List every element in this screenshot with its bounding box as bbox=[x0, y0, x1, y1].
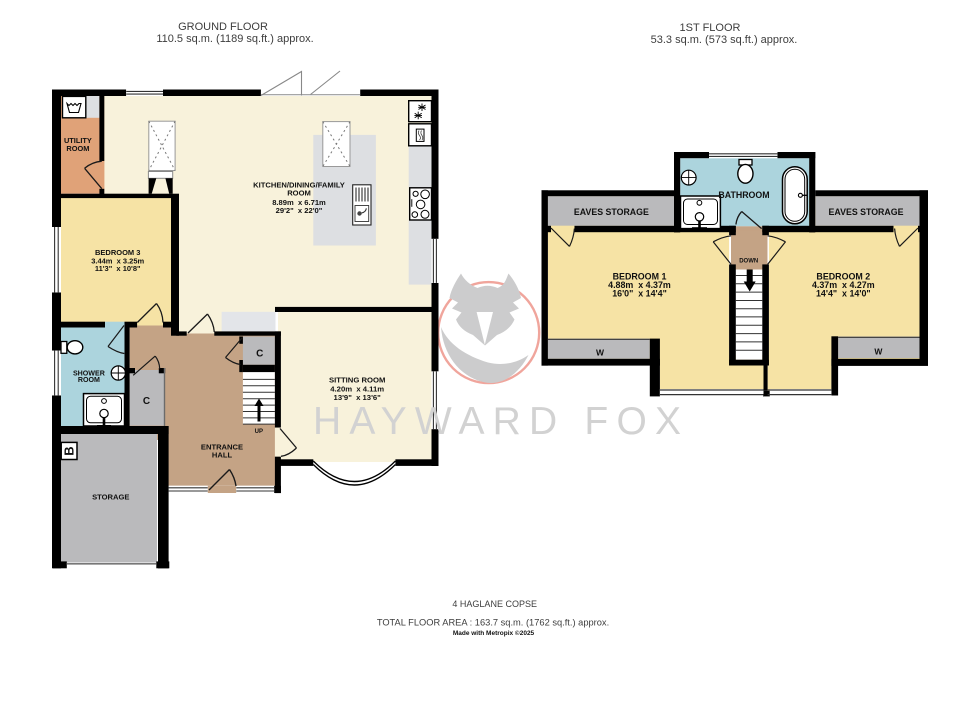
svg-text:4 HAGLANE COPSE: 4 HAGLANE COPSE bbox=[452, 599, 537, 609]
svg-text:ROOM: ROOM bbox=[78, 376, 100, 384]
svg-text:Made with Metropix ©2025: Made with Metropix ©2025 bbox=[453, 629, 535, 637]
svg-text:DOWN: DOWN bbox=[739, 259, 758, 265]
svg-text:29'2" x 22'0": 29'2" x 22'0" bbox=[276, 206, 323, 215]
svg-text:TOTAL FLOOR AREA : 163.7 sq.m.: TOTAL FLOOR AREA : 163.7 sq.m. (1762 sq.… bbox=[377, 618, 609, 628]
svg-text:16'0" x 14'4": 16'0" x 14'4" bbox=[612, 288, 667, 298]
svg-text:EAVES STORAGE: EAVES STORAGE bbox=[574, 207, 649, 217]
svg-text:1ST FLOOR: 1ST FLOOR bbox=[680, 22, 741, 34]
svg-text:HALL: HALL bbox=[212, 451, 233, 460]
svg-text:STORAGE: STORAGE bbox=[92, 492, 129, 501]
svg-text:BATHROOM: BATHROOM bbox=[718, 190, 769, 200]
svg-text:ROOM: ROOM bbox=[66, 144, 89, 153]
svg-text:SITTING ROOM: SITTING ROOM bbox=[329, 375, 385, 384]
svg-text:UP: UP bbox=[255, 429, 263, 435]
svg-text:B: B bbox=[62, 446, 77, 455]
svg-text:EAVES STORAGE: EAVES STORAGE bbox=[829, 207, 904, 217]
svg-text:W: W bbox=[596, 348, 605, 358]
svg-text:11'3" x 10'8": 11'3" x 10'8" bbox=[95, 264, 141, 273]
svg-text:110.5 sq.m. (1189 sq.ft.) appr: 110.5 sq.m. (1189 sq.ft.) approx. bbox=[156, 33, 313, 45]
svg-text:C: C bbox=[143, 396, 150, 407]
svg-text:HAYWARD FOX: HAYWARD FOX bbox=[313, 400, 689, 443]
svg-text:GROUND FLOOR: GROUND FLOOR bbox=[178, 21, 268, 33]
svg-text:ROOM: ROOM bbox=[287, 189, 311, 198]
svg-text:53.3 sq.m. (573 sq.ft.) approx: 53.3 sq.m. (573 sq.ft.) approx. bbox=[651, 34, 798, 46]
svg-text:W: W bbox=[874, 347, 883, 357]
svg-text:C: C bbox=[256, 349, 263, 360]
svg-text:14'4" x 14'0": 14'4" x 14'0" bbox=[816, 288, 871, 298]
